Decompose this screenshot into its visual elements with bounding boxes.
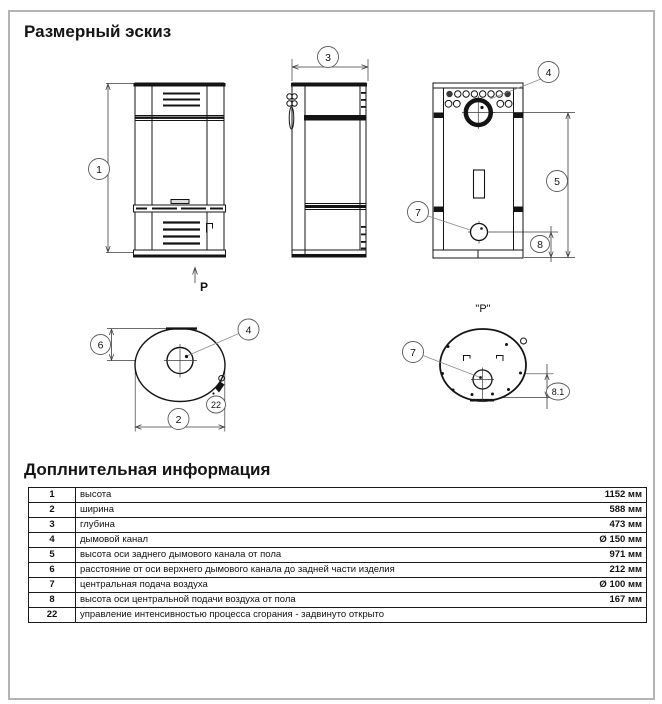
- table-row: 22 управление интенсивностью процесса сг…: [29, 608, 646, 622]
- p-view-label: "P": [475, 303, 490, 315]
- svg-text:5: 5: [554, 176, 560, 188]
- svg-text:4: 4: [246, 324, 252, 336]
- hook-detail: [521, 338, 527, 344]
- air-inlet: [468, 221, 491, 244]
- height-dimension-line: [106, 84, 134, 253]
- row-value: 1152 мм: [605, 488, 646, 502]
- row-number: 7: [29, 578, 76, 592]
- svg-text:6: 6: [98, 339, 104, 351]
- table-row: 5 высота оси заднего дымового канала от …: [29, 548, 646, 563]
- technical-drawing: 1 P: [0, 0, 662, 460]
- row-description: высота: [76, 488, 605, 502]
- row-number: 22: [29, 608, 76, 622]
- row-number: 5: [29, 548, 76, 562]
- table-row: 2 ширина 588 мм: [29, 503, 646, 518]
- door-handle: [171, 200, 189, 204]
- row-value: Ø 150 мм: [599, 533, 646, 547]
- row-number: 1: [29, 488, 76, 502]
- back-cutout: [474, 170, 485, 198]
- row-value: Ø 100 мм: [599, 578, 646, 592]
- row-value: 473 мм: [609, 518, 646, 532]
- info-section-title: Доплнительная информация: [24, 460, 270, 480]
- svg-text:8.1: 8.1: [552, 387, 565, 397]
- row-number: 6: [29, 563, 76, 577]
- svg-text:7: 7: [415, 207, 421, 219]
- svg-text:4: 4: [546, 67, 552, 79]
- bottom-view: "P" 7 8.1: [403, 303, 570, 409]
- row-description: высота оси центральной подачи воздуха от…: [76, 593, 609, 607]
- svg-text:3: 3: [325, 52, 331, 64]
- svg-text:1: 1: [96, 164, 102, 176]
- table-row: 7 центральная подача воздуха Ø 100 мм: [29, 578, 646, 593]
- svg-text:7: 7: [410, 347, 416, 359]
- row-value: 212 мм: [609, 563, 646, 577]
- row-description: расстояние от оси верхнего дымового кана…: [76, 563, 609, 577]
- row-description: ширина: [76, 503, 609, 517]
- top-view: 4 6 22 2: [91, 319, 260, 432]
- row-description: центральная подача воздуха: [76, 578, 599, 592]
- row-description: управление интенсивностью процесса сгора…: [76, 608, 642, 622]
- back-view: 4 5 7 8: [408, 62, 576, 263]
- table-row: 3 глубина 473 мм: [29, 518, 646, 533]
- row-value: 167 мм: [609, 593, 646, 607]
- row-number: 4: [29, 533, 76, 547]
- row-value: [642, 608, 646, 622]
- table-row: 4 дымовой канал Ø 150 мм: [29, 533, 646, 548]
- table-row: 8 высота оси центральной подачи воздуха …: [29, 593, 646, 608]
- side-view: 3: [287, 47, 368, 258]
- svg-text:8: 8: [537, 239, 543, 251]
- row-number: 8: [29, 593, 76, 607]
- table-row: 6 расстояние от оси верхнего дымового ка…: [29, 563, 646, 578]
- row-description: глубина: [76, 518, 609, 532]
- row-description: высота оси заднего дымового канала от по…: [76, 548, 609, 562]
- flue-outlet: [462, 96, 495, 129]
- row-description: дымовой канал: [76, 533, 599, 547]
- row-value: 588 мм: [609, 503, 646, 517]
- row-number: 3: [29, 518, 76, 532]
- dimension-table: 1 высота 1152 мм 2 ширина 588 мм 3 глуби…: [28, 487, 647, 623]
- p-direction-arrow: P: [193, 268, 208, 295]
- front-view: 1 P: [89, 83, 226, 294]
- p-arrow-label: P: [200, 280, 208, 294]
- row-number: 2: [29, 503, 76, 517]
- svg-text:22: 22: [211, 400, 221, 410]
- table-row: 1 высота 1152 мм: [29, 488, 646, 503]
- row-value: 971 мм: [609, 548, 646, 562]
- svg-text:2: 2: [176, 414, 182, 426]
